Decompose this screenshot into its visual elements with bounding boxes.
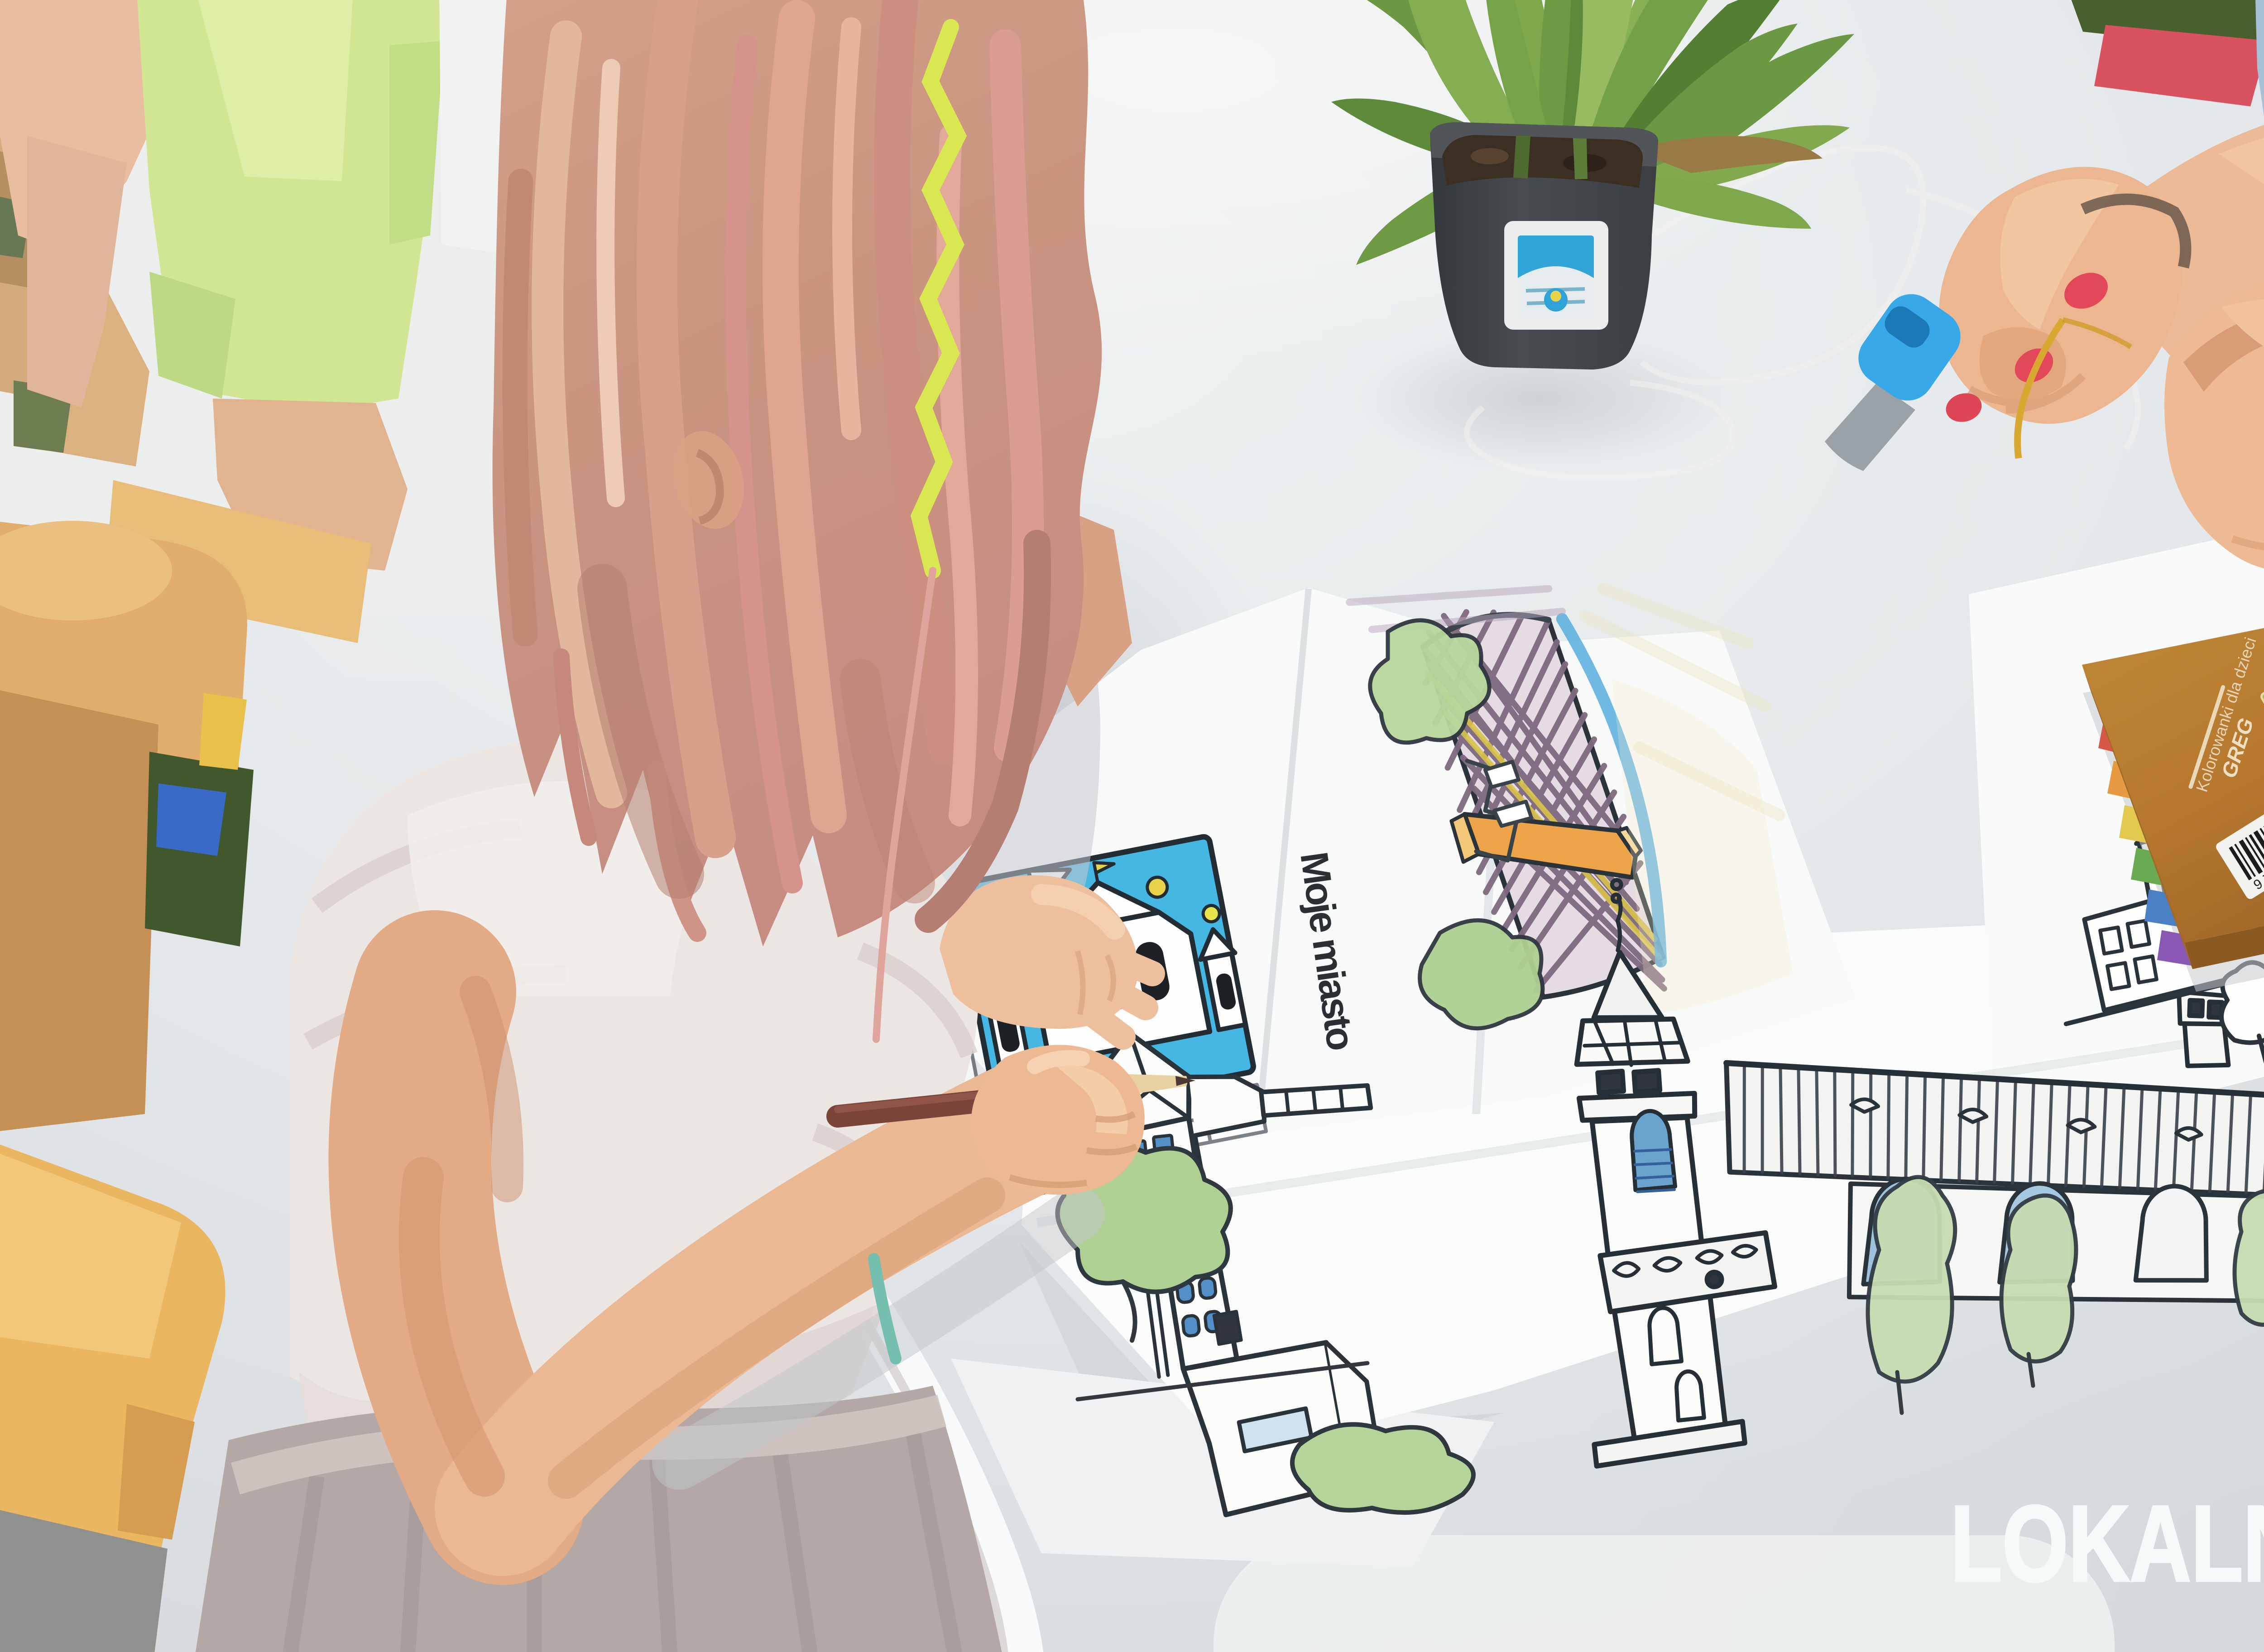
svg-text:LOKALNA: LOKALNA (1950, 1483, 2264, 1604)
